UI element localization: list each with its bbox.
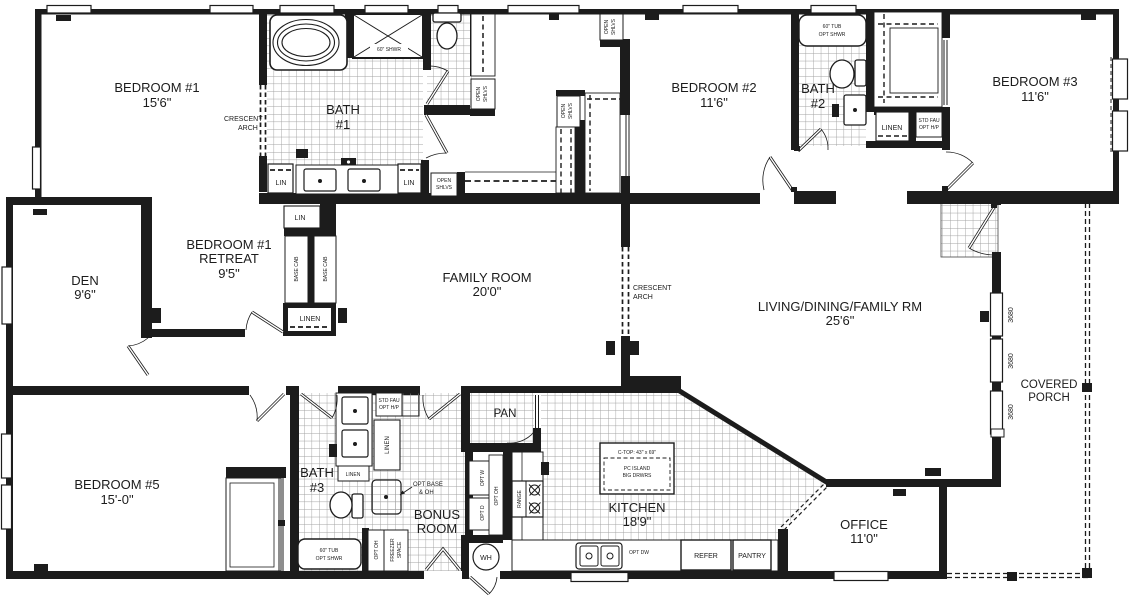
svg-text:20'0": 20'0" <box>473 284 502 299</box>
svg-text:LIN: LIN <box>295 215 306 222</box>
svg-text:LINEN: LINEN <box>882 125 903 132</box>
svg-text:OPT BASE: OPT BASE <box>413 482 443 488</box>
svg-text:BATH: BATH <box>801 81 835 96</box>
svg-text:OPEN: OPEN <box>604 20 610 35</box>
svg-text:18'9": 18'9" <box>623 514 652 529</box>
svg-text:OPT OH: OPT OH <box>494 486 500 505</box>
svg-text:BASE CAB: BASE CAB <box>323 256 329 282</box>
svg-text:ARCH: ARCH <box>238 125 258 132</box>
svg-text:BEDROOM #3: BEDROOM #3 <box>992 74 1077 89</box>
svg-text:#3: #3 <box>310 480 324 495</box>
svg-text:LIN: LIN <box>276 180 287 187</box>
svg-text:OPT SHWR: OPT SHWR <box>316 556 343 562</box>
svg-text:BASE CAB: BASE CAB <box>294 256 300 282</box>
svg-text:LIN: LIN <box>404 180 415 187</box>
svg-text:KITCHEN: KITCHEN <box>608 500 665 515</box>
svg-text:LIVING/DINING/FAMILY RM: LIVING/DINING/FAMILY RM <box>758 299 922 314</box>
svg-text:3680: 3680 <box>1008 353 1015 369</box>
svg-text:OPEN: OPEN <box>476 87 482 102</box>
svg-text:OFFICE: OFFICE <box>840 517 888 532</box>
svg-text:ARCH: ARCH <box>633 294 653 301</box>
svg-text:9'6": 9'6" <box>74 287 96 302</box>
svg-text:REFER: REFER <box>694 553 718 560</box>
svg-text:3680: 3680 <box>1008 307 1015 323</box>
svg-text:CRESCENT: CRESCENT <box>633 285 672 292</box>
svg-text:BONUS: BONUS <box>414 507 461 522</box>
svg-text:3680: 3680 <box>1008 404 1015 420</box>
svg-text:STD FAU: STD FAU <box>918 118 940 124</box>
svg-text:RETREAT: RETREAT <box>199 251 259 266</box>
svg-text:OPT SHWR: OPT SHWR <box>819 32 846 38</box>
svg-text:LINEN: LINEN <box>346 472 361 478</box>
svg-text:OPT D: OPT D <box>480 505 486 521</box>
svg-text:C-TOP: 43" x 69": C-TOP: 43" x 69" <box>618 450 656 456</box>
svg-text:FREEZER: FREEZER <box>390 538 396 562</box>
svg-text:OPT W: OPT W <box>480 470 486 487</box>
svg-text:OPEN: OPEN <box>437 178 452 184</box>
svg-text:LINEN: LINEN <box>385 436 391 454</box>
svg-text:60" SHWR: 60" SHWR <box>377 47 401 53</box>
svg-text:11'6": 11'6" <box>700 95 728 110</box>
svg-text:CRESCENT: CRESCENT <box>224 116 263 123</box>
svg-text:SHLVS: SHLVS <box>483 85 489 102</box>
svg-text:SHLVS: SHLVS <box>436 185 453 191</box>
svg-text:SHLVS: SHLVS <box>568 102 574 119</box>
svg-text:OPT H/P: OPT H/P <box>919 125 940 131</box>
svg-text:COVERED: COVERED <box>1021 379 1078 391</box>
svg-text:STD FAU: STD FAU <box>378 398 400 404</box>
svg-text:& OH: & OH <box>419 490 434 496</box>
svg-text:9'5": 9'5" <box>218 266 240 281</box>
svg-text:OPEN: OPEN <box>561 104 567 119</box>
svg-text:FAMILY ROOM: FAMILY ROOM <box>442 270 531 285</box>
svg-text:DEN: DEN <box>71 273 98 288</box>
svg-text:PORCH: PORCH <box>1028 392 1070 404</box>
svg-text:LINEN: LINEN <box>300 316 321 323</box>
svg-text:WH: WH <box>480 555 492 562</box>
svg-text:OPT DW: OPT DW <box>629 550 649 556</box>
svg-text:#1: #1 <box>336 117 350 132</box>
svg-text:BEDROOM #5: BEDROOM #5 <box>74 477 159 492</box>
svg-text:BEDROOM #2: BEDROOM #2 <box>671 80 756 95</box>
svg-text:SPACE: SPACE <box>397 541 403 558</box>
svg-text:15'-0": 15'-0" <box>100 492 134 507</box>
svg-text:BIG DRWRS: BIG DRWRS <box>623 473 652 479</box>
svg-text:#2: #2 <box>811 96 825 111</box>
svg-text:SHLVS: SHLVS <box>611 18 617 35</box>
svg-text:BEDROOM #1: BEDROOM #1 <box>114 80 199 95</box>
svg-text:PC ISLAND: PC ISLAND <box>624 466 651 472</box>
svg-text:BEDROOM #1: BEDROOM #1 <box>186 237 271 252</box>
svg-text:11'6": 11'6" <box>1021 89 1049 104</box>
svg-text:OPT H/P: OPT H/P <box>379 405 400 411</box>
svg-text:OPT OH: OPT OH <box>374 540 380 559</box>
svg-text:BATH: BATH <box>326 102 360 117</box>
svg-text:15'6": 15'6" <box>143 95 172 110</box>
svg-text:PAN: PAN <box>494 408 517 420</box>
svg-text:25'6": 25'6" <box>826 313 855 328</box>
svg-text:RANGE: RANGE <box>517 489 523 507</box>
svg-text:11'0": 11'0" <box>850 531 878 546</box>
svg-text:60" TUB: 60" TUB <box>823 24 842 30</box>
svg-text:BATH: BATH <box>300 465 334 480</box>
svg-text:PANTRY: PANTRY <box>738 553 766 560</box>
svg-text:ROOM: ROOM <box>417 521 457 536</box>
svg-text:60" TUB: 60" TUB <box>320 548 339 554</box>
